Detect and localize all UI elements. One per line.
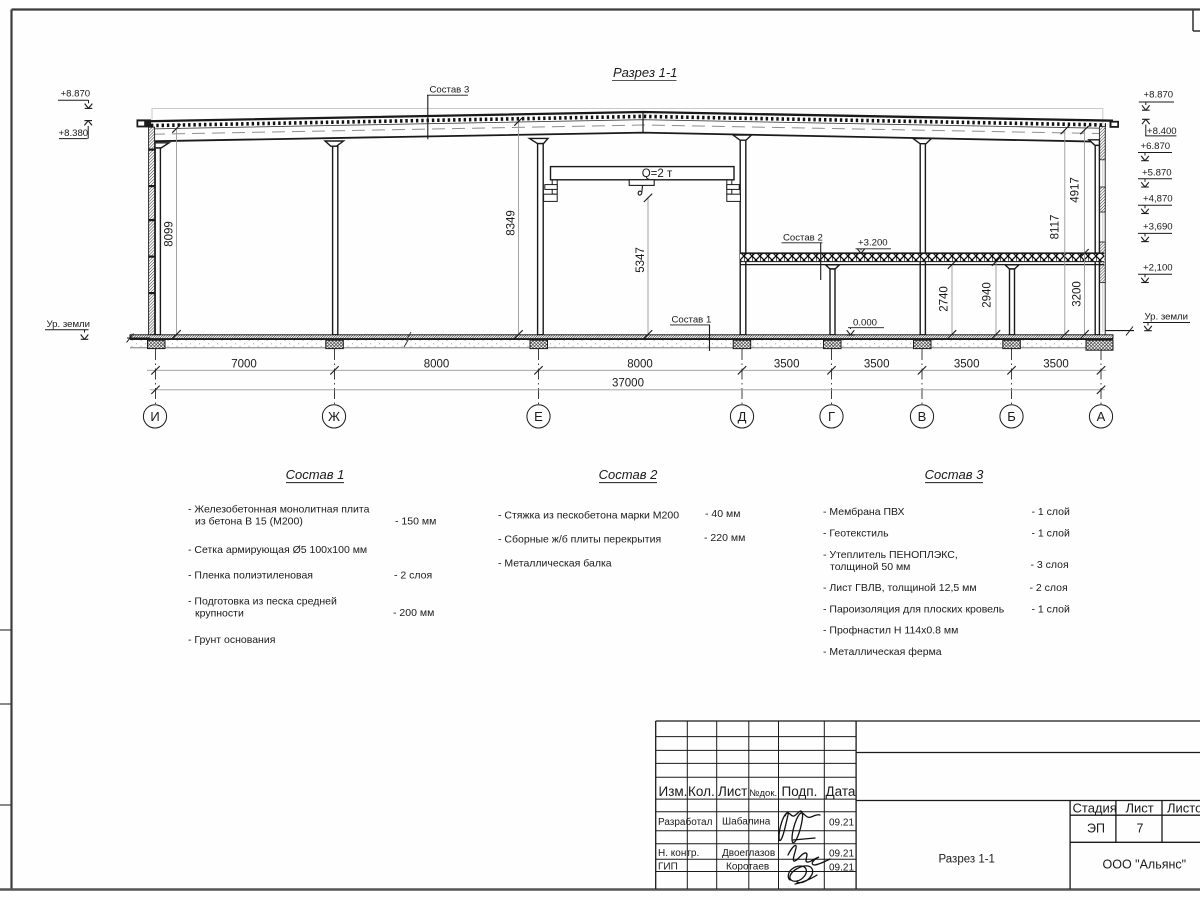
svg-text:Стадия: Стадия: [1073, 801, 1117, 816]
svg-text:Н. контр.: Н. контр.: [658, 848, 699, 859]
svg-text:Д: Д: [738, 409, 747, 424]
svg-text:- Металлическая ферма: - Металлическая ферма: [823, 646, 942, 658]
svg-text:- 150 мм: - 150 мм: [395, 515, 436, 527]
svg-text:Ж: Ж: [328, 409, 340, 424]
svg-text:- Утеплитель ПЕНОПЛЭКС,: - Утеплитель ПЕНОПЛЭКС,: [823, 549, 958, 561]
svg-text:Разрез 1-1: Разрез 1-1: [613, 65, 677, 80]
svg-text:0.000: 0.000: [853, 318, 877, 329]
svg-text:- Подготовка из песка средней: - Подготовка из песка средней: [188, 596, 337, 608]
svg-text:Подп.: Подп.: [782, 784, 818, 799]
svg-text:5347: 5347: [635, 247, 647, 273]
svg-text:2740: 2740: [939, 286, 951, 312]
svg-text:- Железобетонная монолитная п: - Железобетонная монолитная плита: [188, 503, 370, 515]
svg-text:- 1 слой: - 1 слой: [1032, 528, 1071, 540]
svg-text:Лист: Лист: [718, 784, 747, 799]
svg-text:+8.870: +8.870: [1144, 89, 1174, 100]
svg-text:Состав 3: Состав 3: [430, 85, 470, 96]
svg-text:+4,870: +4,870: [1143, 194, 1173, 205]
svg-text:- Металлическая балка: - Металлическая балка: [498, 557, 612, 569]
svg-text:3200: 3200: [1072, 281, 1084, 307]
svg-text:- Сетка армирующая Ø5 100х100: - Сетка армирующая Ø5 100х100 мм: [188, 544, 367, 556]
svg-text:3500: 3500: [954, 358, 980, 370]
svg-text:Ур. земли: Ур. земли: [47, 319, 91, 330]
svg-text:+6.870: +6.870: [1141, 141, 1171, 152]
svg-text:- Лист ГВЛВ, толщиной 12,5 мм: - Лист ГВЛВ, толщиной 12,5 мм: [823, 582, 977, 594]
svg-text:+2,100: +2,100: [1143, 263, 1173, 274]
svg-text:ЭП: ЭП: [1087, 822, 1105, 836]
svg-text:Шабалина: Шабалина: [722, 816, 771, 828]
svg-text:+8.400: +8.400: [1147, 126, 1177, 137]
svg-text:8000: 8000: [424, 358, 450, 370]
svg-text:- Стяжка из пескобетона марки: - Стяжка из пескобетона марки М200: [498, 510, 679, 522]
svg-text:8099: 8099: [164, 221, 176, 247]
svg-text:+8.870: +8.870: [61, 88, 91, 99]
svg-text:7000: 7000: [231, 358, 257, 370]
svg-text:Листов: Листов: [1167, 801, 1200, 816]
svg-text:- 220 мм: - 220 мм: [704, 532, 745, 544]
svg-text:Q=2 т: Q=2 т: [642, 168, 673, 180]
svg-text:Ур. земли: Ур. земли: [1145, 312, 1189, 323]
svg-text:+3.200: +3.200: [858, 238, 888, 249]
svg-text:- 200 мм: - 200 мм: [393, 607, 434, 619]
svg-text:Разрез 1-1: Разрез 1-1: [939, 854, 995, 866]
svg-text:- Сборные ж/б плиты перекрытия: - Сборные ж/б плиты перекрытия: [498, 534, 661, 546]
svg-text:Е: Е: [534, 409, 543, 424]
svg-text:- Мембрана ПВХ: - Мембрана ПВХ: [823, 506, 905, 518]
svg-text:- Пароизоляция для плоских кро: - Пароизоляция для плоских кровель: [823, 603, 1005, 615]
svg-text:толщиной 50 мм: толщиной 50 мм: [830, 561, 910, 573]
svg-text:09.21: 09.21: [829, 862, 854, 873]
svg-text:А: А: [1097, 409, 1106, 424]
svg-text:09.21: 09.21: [829, 817, 854, 828]
svg-text:3500: 3500: [1043, 358, 1069, 370]
svg-text:№док.: №док.: [749, 788, 777, 799]
svg-text:- 2 слоя: - 2 слоя: [394, 569, 432, 581]
svg-text:Изм.: Изм.: [659, 784, 688, 799]
svg-text:- 3 слоя: - 3 слоя: [1031, 559, 1069, 571]
svg-text:4917: 4917: [1070, 177, 1082, 203]
svg-text:8117: 8117: [1050, 215, 1062, 240]
svg-text:Двоеглазов: Двоеглазов: [722, 848, 775, 859]
svg-text:Состав 1: Состав 1: [672, 314, 712, 325]
svg-text:8349: 8349: [506, 210, 518, 236]
svg-text:Г: Г: [828, 409, 835, 424]
svg-text:Состав 3: Состав 3: [925, 467, 984, 482]
svg-text:Кол.: Кол.: [688, 784, 715, 799]
svg-text:- Профнастил Н 114х0.8 мм: - Профнастил Н 114х0.8 мм: [823, 625, 958, 637]
svg-text:- 40 мм: - 40 мм: [705, 508, 740, 520]
svg-text:ООО "Альянс": ООО "Альянс": [1103, 858, 1187, 872]
svg-text:ГИП: ГИП: [658, 861, 678, 872]
svg-text:3500: 3500: [774, 358, 800, 370]
svg-text:- 1 слой: - 1 слой: [1032, 506, 1071, 518]
svg-text:37000: 37000: [612, 378, 644, 390]
svg-text:- Пленка полиэтиленовая: - Пленка полиэтиленовая: [188, 569, 313, 581]
svg-text:крупности: крупности: [195, 608, 244, 620]
svg-text:8000: 8000: [627, 358, 653, 370]
svg-text:3500: 3500: [864, 358, 890, 370]
svg-text:- 1 слой: - 1 слой: [1032, 603, 1071, 615]
svg-text:В: В: [918, 409, 927, 424]
svg-text:Б: Б: [1007, 409, 1016, 424]
svg-text:- 2 слоя: - 2 слоя: [1030, 582, 1068, 594]
svg-text:Состав 2: Состав 2: [783, 232, 823, 243]
svg-text:09.21: 09.21: [829, 849, 854, 860]
svg-text:Состав 2: Состав 2: [599, 467, 658, 482]
svg-text:Дата: Дата: [826, 784, 856, 799]
svg-text:Разработал: Разработал: [658, 816, 713, 828]
svg-text:7: 7: [1137, 822, 1144, 836]
svg-text:Лист: Лист: [1126, 801, 1154, 816]
svg-text:из бетона В 15 (М200): из бетона В 15 (М200): [195, 515, 303, 527]
svg-text:Состав 1: Состав 1: [286, 467, 345, 482]
svg-text:+5.870: +5.870: [1142, 167, 1172, 178]
svg-text:Коротаев: Коротаев: [726, 861, 769, 872]
svg-text:И: И: [150, 409, 159, 424]
svg-text:+8.380: +8.380: [59, 128, 89, 139]
svg-text:- Грунт основания: - Грунт основания: [188, 634, 275, 646]
svg-text:2940: 2940: [982, 282, 994, 308]
svg-text:+3,690: +3,690: [1143, 222, 1173, 233]
svg-text:- Геотекстиль: - Геотекстиль: [823, 528, 889, 540]
